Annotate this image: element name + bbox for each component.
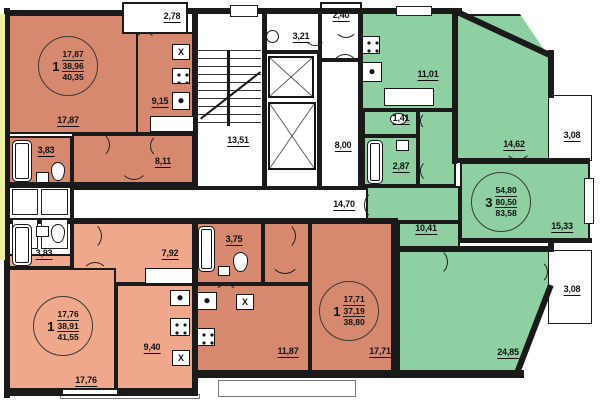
stove-icon: X [236, 294, 254, 310]
total-area-value: 38,96 [62, 61, 83, 73]
label-living-bottom-center: 17,71 [369, 347, 391, 358]
washbasin-icon [36, 226, 49, 237]
door-arc [120, 152, 148, 180]
wall-between-center-green [392, 222, 398, 370]
total-area-value: 38,91 [57, 321, 78, 333]
label-bath-bottom-left: 3,83 [36, 249, 53, 260]
apartment-areas: 17,71 37,19 38,80 [343, 294, 364, 328]
label-balcony-right-bottom: 3,08 [564, 285, 581, 296]
door-arc [420, 248, 448, 276]
door-arc [524, 260, 548, 284]
label-refuse-room: 3,21 [293, 32, 310, 43]
washbasin-icon [36, 172, 49, 183]
door-arc [420, 112, 438, 130]
overall-area-value: 40,35 [62, 72, 83, 83]
label-hall-bottom-left: 7,92 [162, 249, 179, 260]
counter [150, 116, 194, 132]
sink-icon [362, 62, 382, 82]
window [62, 389, 118, 395]
burners-icon [172, 68, 190, 84]
window [230, 5, 258, 17]
washbasin-icon [396, 140, 409, 151]
apartment-summary-2: 1 17,76 38,91 41,55 [33, 296, 93, 356]
label-wc-green: 1,41 [393, 114, 410, 125]
apartment-summary-1: 1 17,87 38,96 40,35 [38, 36, 98, 96]
wall-green-west [358, 8, 363, 188]
label-hall-green: 10,41 [415, 224, 437, 235]
window [396, 6, 432, 16]
window [584, 178, 594, 224]
label-balcony-right-top: 3,08 [564, 131, 581, 142]
total-area-value: 80,50 [495, 197, 516, 209]
apartment-rooms-count: 1 [47, 319, 54, 334]
floor-plan: X X X 2,78 17,87 9,15 3,83 8,11 13,51 3,… [0, 0, 600, 400]
apartment-areas: 17,87 38,96 40,35 [62, 49, 83, 83]
door-arc [82, 262, 108, 288]
label-corridor-main: 14,70 [333, 200, 355, 211]
wall-living-green-top [398, 246, 550, 251]
burners-icon [170, 318, 190, 336]
burners-icon [362, 36, 380, 54]
apartment-areas: 17,76 38,91 41,55 [57, 309, 78, 343]
label-living-green: 24,85 [497, 348, 519, 359]
label-bedroom-green-right: 15,33 [551, 222, 573, 233]
loggia-strip [0, 14, 5, 260]
label-kitchen-bottom-left: 9,40 [144, 343, 161, 354]
room-balcony-right-top [548, 95, 592, 161]
door-arc [364, 190, 394, 220]
label-hall-top-left: 8,11 [155, 157, 171, 168]
wall-stairwell-left [192, 8, 198, 184]
apartment-summary-4: 3 54,80 80,50 83,58 [471, 172, 531, 232]
wall-right-upper [548, 50, 554, 98]
counter [384, 88, 434, 106]
wall-corridor-upper-left [317, 52, 322, 188]
wall-bedroom-left [452, 8, 457, 164]
total-area-value: 37,19 [343, 306, 364, 318]
door-arc [150, 134, 174, 158]
label-kitchen-green: 11,01 [417, 70, 438, 81]
bathtub-icon [198, 226, 215, 272]
bathtub-icon [12, 224, 32, 266]
wall-bedroom-right-bottom [460, 238, 592, 243]
elevator-large-icon [268, 102, 316, 170]
overall-area-value: 83,58 [495, 208, 516, 219]
label-balcony-top-left: 2,78 [164, 12, 181, 23]
room-wc-green [363, 110, 418, 136]
door-arc [74, 222, 102, 250]
label-living-top-left: 17,87 [57, 116, 79, 127]
apartment-rooms-count: 1 [52, 59, 59, 74]
apartment-summary-3: 1 17,71 37,19 38,80 [319, 281, 379, 341]
stove-icon: X [172, 44, 190, 60]
overall-area-value: 41,55 [57, 332, 78, 343]
wall-bottom-step [192, 368, 198, 396]
living-area-value: 17,71 [343, 294, 364, 306]
label-vestibule: 2,40 [333, 11, 350, 22]
room-corridor-main [72, 188, 368, 222]
label-corridor-upper: 8,00 [335, 141, 352, 152]
bathtub-icon [367, 140, 383, 184]
washbasin-icon [218, 266, 230, 276]
label-kitchen-bottom-center: 11,87 [277, 347, 298, 358]
wall-top-left [4, 10, 124, 16]
elevator-small-icon [268, 56, 314, 98]
living-area-value: 17,76 [57, 309, 78, 321]
door-arc [332, 54, 358, 80]
label-stairwell: 13,51 [227, 136, 249, 147]
overall-area-value: 38,80 [343, 317, 364, 328]
label-bedroom-green-top: 14,62 [503, 140, 525, 151]
door-arc [214, 284, 238, 308]
door-arc [84, 132, 110, 158]
label-living-bottom-left: 17,76 [75, 376, 97, 387]
apartment-rooms-count: 1 [333, 304, 340, 319]
door-arc [420, 160, 442, 182]
apartment-areas: 54,80 80,50 83,58 [495, 185, 516, 219]
burners-icon [197, 328, 215, 346]
bathtub-icon [12, 140, 32, 182]
label-bath-bottom-center: 3,75 [226, 235, 243, 246]
apartment-rooms-count: 3 [485, 195, 492, 210]
door-arc [134, 32, 156, 54]
label-bath-green: 2,87 [393, 162, 410, 173]
label-bath-top-left: 3,83 [38, 146, 55, 157]
living-area-value: 17,87 [62, 49, 83, 61]
sink-icon [170, 290, 190, 306]
living-area-value: 54,80 [495, 185, 516, 197]
vent-box [12, 189, 38, 215]
refuse-chute-icon [266, 30, 279, 43]
balcony-outline-bottom-center [218, 380, 356, 397]
wardrobe [145, 268, 193, 284]
label-kitchen-top-left: 9,15 [152, 97, 169, 108]
stove-icon: X [172, 350, 190, 366]
wall-bottom-center [192, 370, 524, 378]
vent-box [41, 189, 68, 215]
stairs-stringer [227, 50, 230, 126]
sink-icon [172, 92, 190, 110]
door-arc [270, 244, 300, 274]
